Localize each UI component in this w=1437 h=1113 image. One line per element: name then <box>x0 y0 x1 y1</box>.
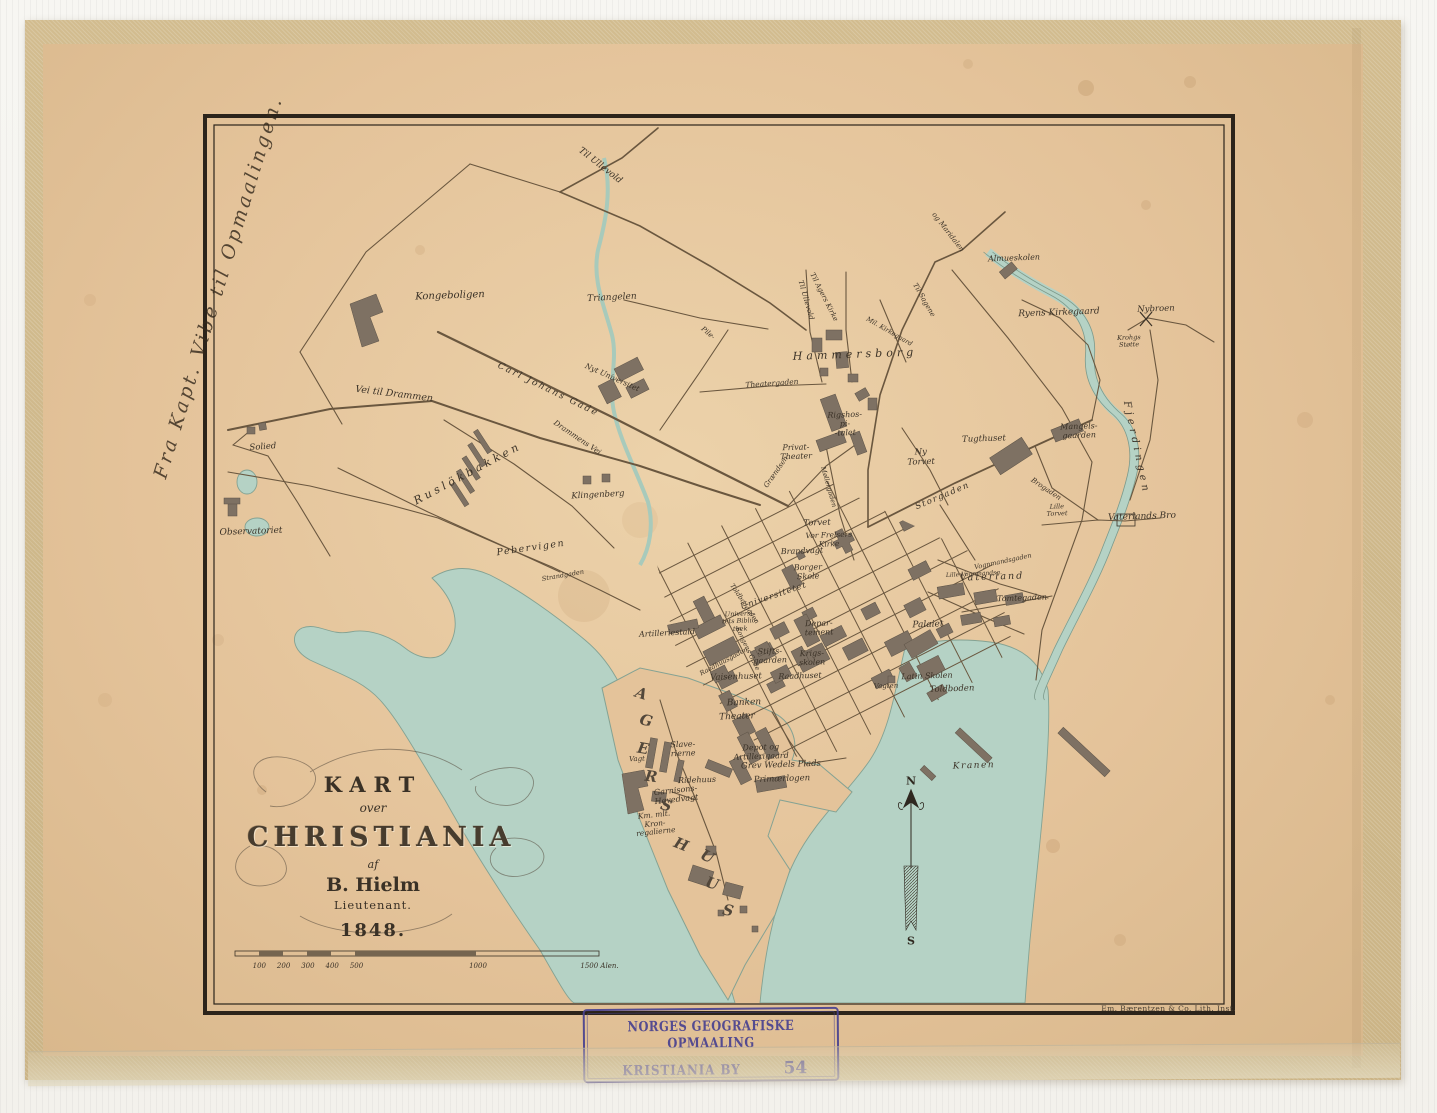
scale-bar-ticks: 10020030040050010001500 Alen. <box>0 0 1437 1113</box>
scale-tick-500: 500 <box>350 962 363 970</box>
scale-tick-300: 300 <box>301 962 314 970</box>
lithographer-imprint: Em. Bærentzen & Co. Lith. Inst. <box>1068 1004 1236 1013</box>
scale-tick-200: 200 <box>277 962 290 970</box>
scale-tick-1500: 1500 Alen. <box>580 962 618 970</box>
scale-tick-1000: 1000 <box>469 962 487 970</box>
scanned-map-sheet: Til UllevoldKongeboligenTriangelenVei ti… <box>0 0 1437 1113</box>
scale-tick-100: 100 <box>253 962 266 970</box>
scale-tick-400: 400 <box>326 962 339 970</box>
